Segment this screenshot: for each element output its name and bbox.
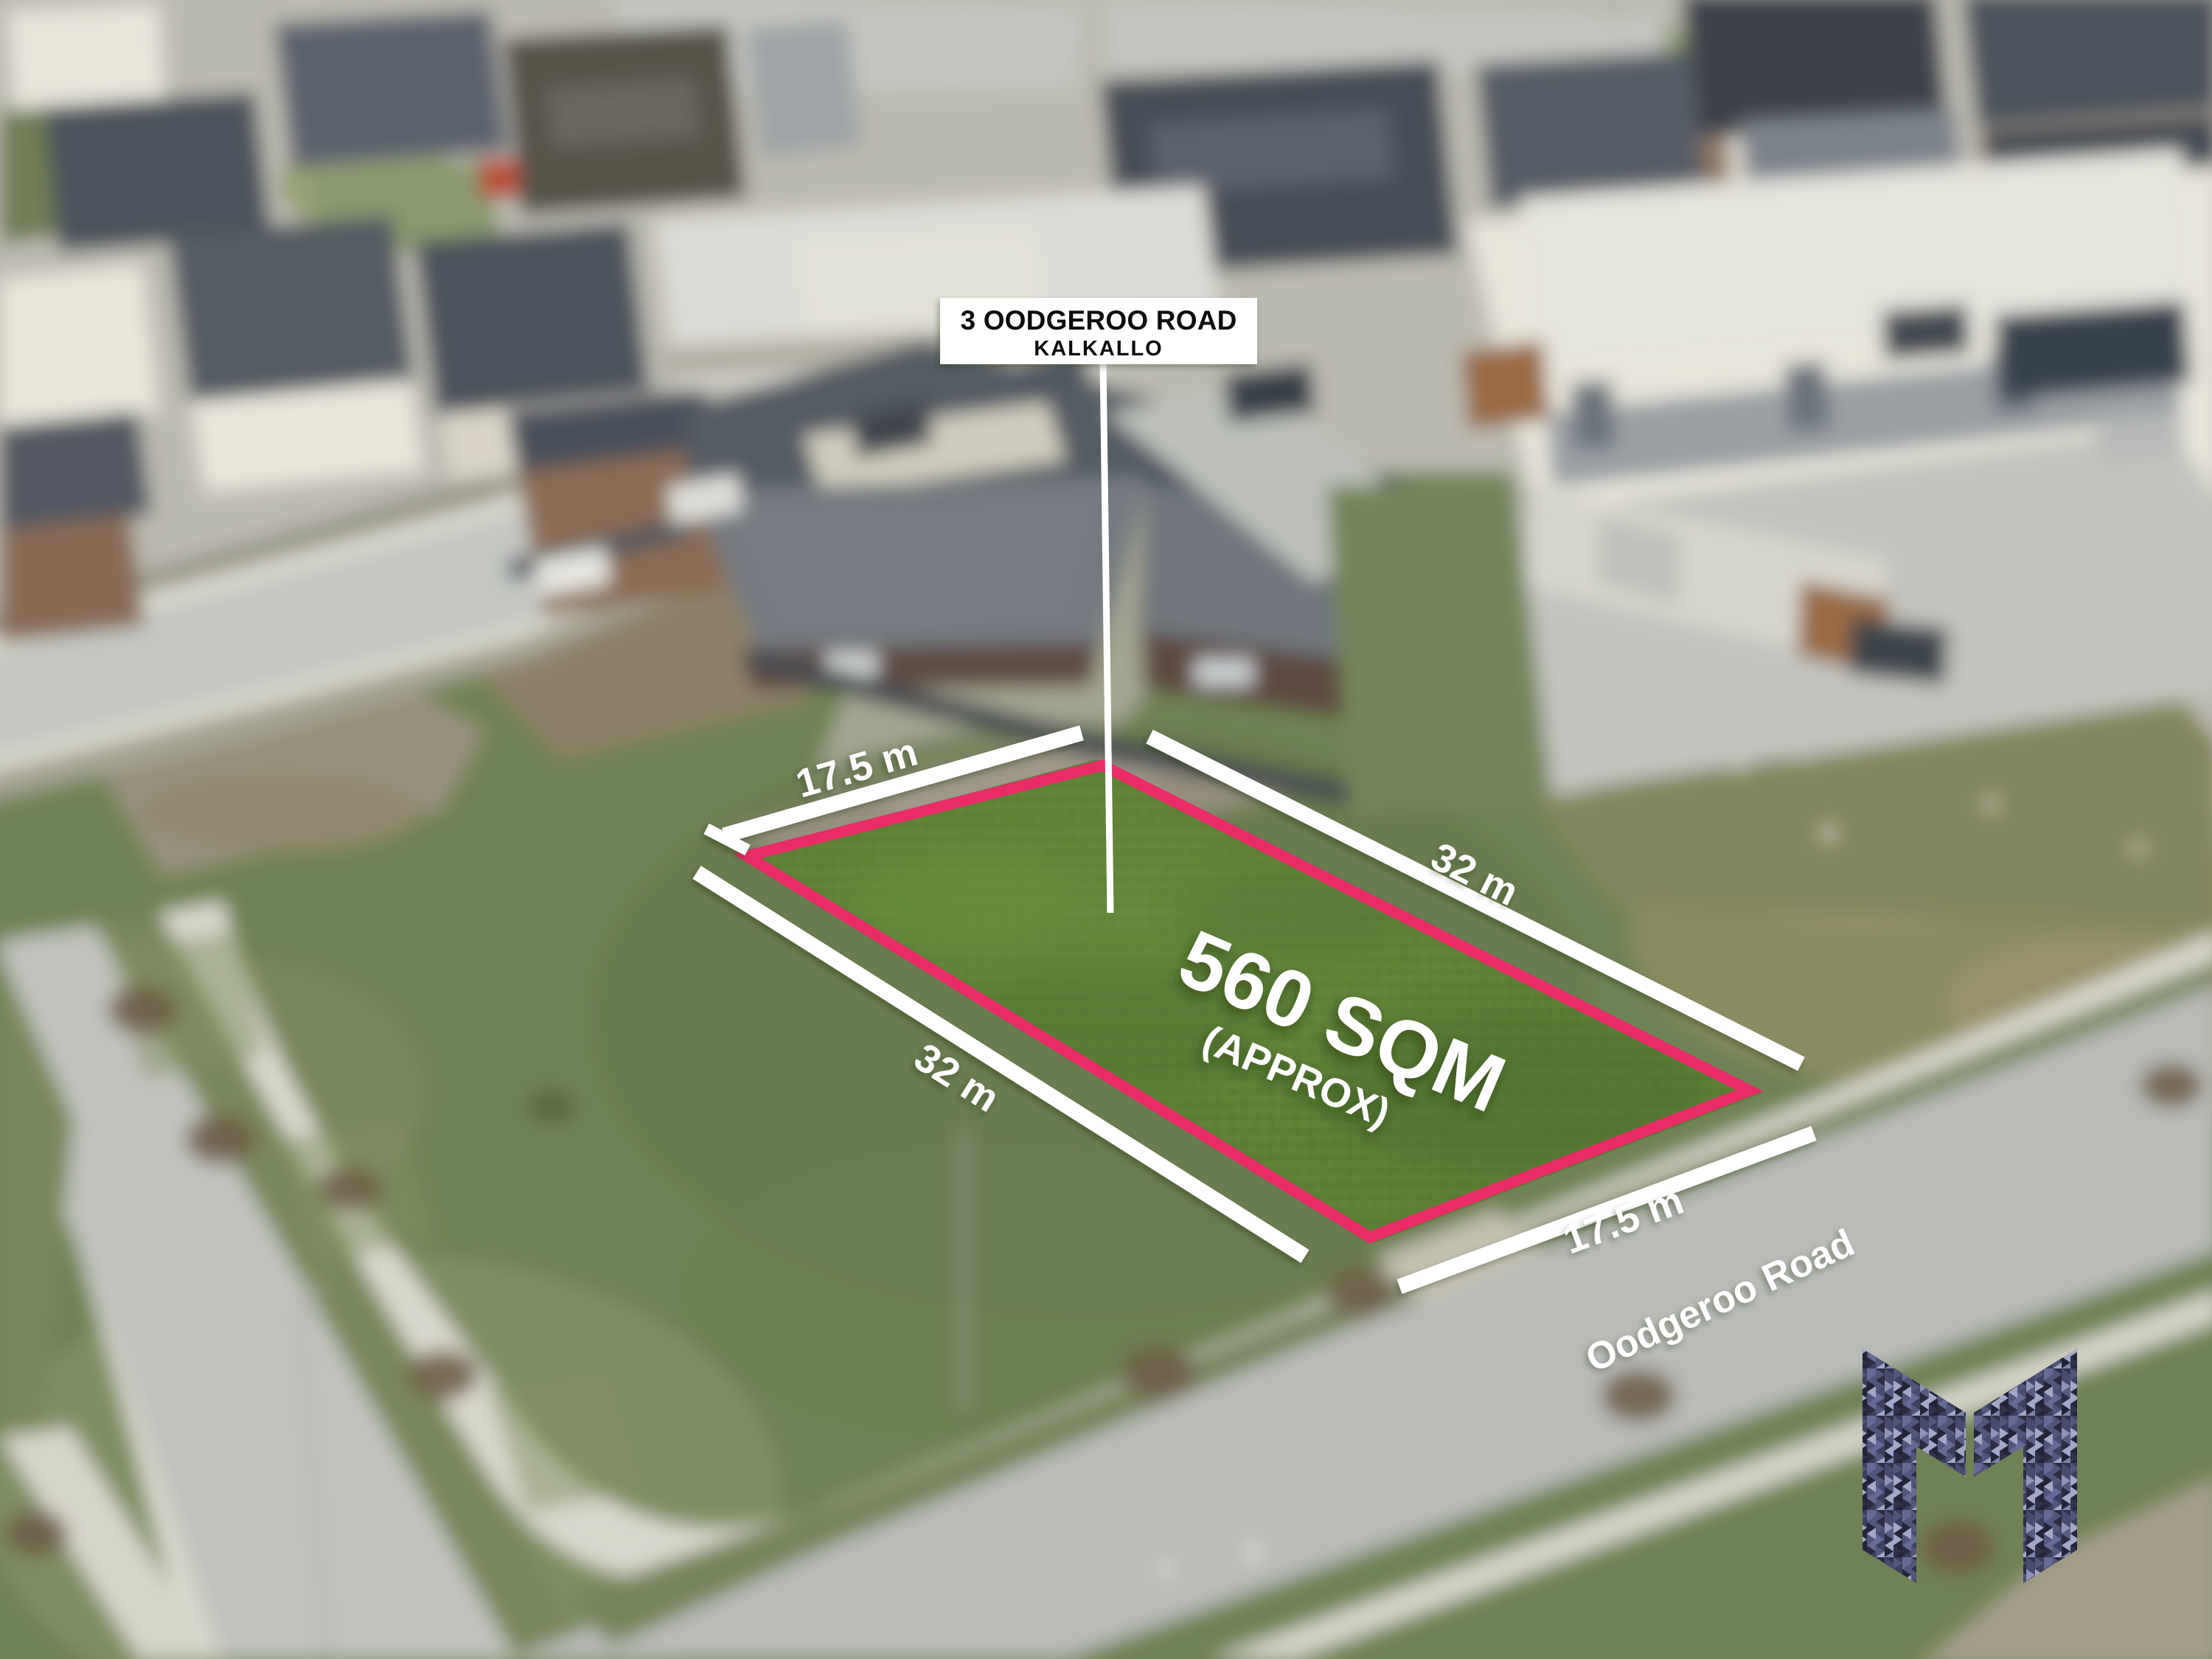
svg-text:3 OODGEROO ROAD: 3 OODGEROO ROAD <box>960 305 1237 335</box>
svg-text:KALKALLO: KALKALLO <box>1034 337 1163 361</box>
